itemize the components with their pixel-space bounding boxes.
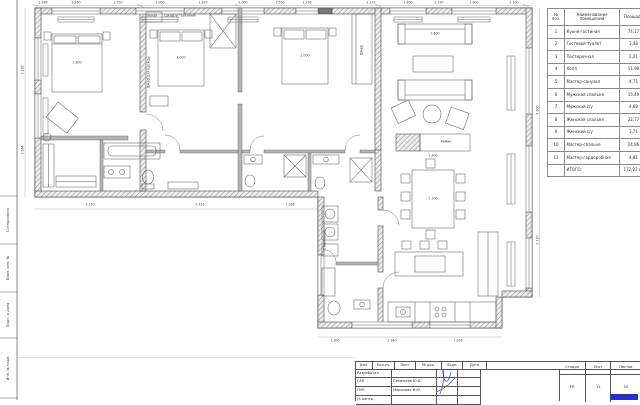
title-block-name-cell	[392, 370, 437, 378]
title-block: Изм. Кол.уч. Лист № док. Подп. Дата Разр…	[355, 361, 640, 401]
schedule-cell-name: Мастер-спальня	[565, 139, 620, 152]
sheet-frame	[0, 0, 355, 400]
stage-label: Стадия	[559, 362, 586, 374]
frame-side-label: Подп. и дата	[6, 303, 10, 327]
schedule-total-blank	[548, 164, 565, 177]
schedule-cell-area: 3,71	[620, 126, 640, 139]
selection-highlight	[610, 394, 638, 400]
schedule-cell-num: 4	[548, 63, 565, 76]
schedule-header-name: Наименование помещений	[565, 9, 620, 26]
col-list: Лист	[395, 362, 416, 369]
sheet-label: Лист	[586, 362, 611, 374]
schedule-cell-num: 11	[548, 151, 565, 164]
title-block-role-row: ГИПМорозова И.Ю.	[356, 387, 481, 396]
drawing-sheet: { "colors":{"accent_blue":"#2531c9","wal…	[0, 0, 640, 400]
col-podp: Подп.	[442, 362, 463, 369]
title-block-role-cell: Разработал	[356, 370, 392, 378]
schedule-header-num: № поз.	[548, 9, 565, 26]
title-block-name-cell: Морозова И.Ю.	[392, 387, 437, 395]
title-block-role-row: ГАПСеменова Ю.Б.	[356, 378, 481, 387]
schedule-cell-name: Женский с/у	[565, 126, 620, 139]
vent-shaft	[318, 8, 332, 14]
title-block-role-row: Разработал	[356, 370, 481, 379]
schedule-row: 4Холл11,98	[548, 63, 640, 76]
title-block-sign-cell	[437, 370, 458, 378]
schedule-cell-num: 5	[548, 76, 565, 89]
schedule-cell-name: Кухня-гостиная	[565, 26, 620, 39]
schedule-row: 9Женский с/у3,71	[548, 126, 640, 139]
title-block-role-row: Н. контр.	[356, 396, 481, 405]
schedule-row: 5Мастер-санузел4,71	[548, 76, 640, 89]
frame-side-label: Согласовано	[6, 208, 10, 232]
title-block-sign-cell	[437, 378, 458, 386]
schedule-cell-num: 6	[548, 88, 565, 101]
title-block-sign-cell	[437, 387, 458, 395]
schedule-cell-name: Гостевой туалет	[565, 38, 620, 51]
schedule-cell-name: Постирочная	[565, 51, 620, 64]
title-block-role-cell: ГАП	[356, 378, 392, 386]
schedule-header-row: № поз. Наименование помещений Площадь	[548, 9, 640, 26]
schedule-cell-name: Мастер-гардеробная	[565, 151, 620, 164]
title-block-date-cell	[458, 370, 481, 378]
schedule-row: 1Кухня-гостиная74,17	[548, 26, 640, 39]
schedule-cell-num: 2	[548, 38, 565, 51]
schedule-cell-num: 3	[548, 51, 565, 64]
floor-plan-drawing	[0, 0, 640, 400]
furniture	[43, 12, 498, 322]
schedule-cell-area: 15,49	[620, 88, 640, 101]
schedule-cell-name: Женская спальня	[565, 114, 620, 127]
sheets-label: Листов	[611, 362, 640, 374]
schedule-row: 7Мужской с/у4,88	[548, 101, 640, 114]
schedule-row: 11Мастер-гардеробная4,81	[548, 151, 640, 164]
title-block-role-cell: ГИП	[356, 387, 392, 395]
schedule-cell-name: Холл	[565, 63, 620, 76]
frame-side-label: Инв. № подл.	[6, 356, 10, 381]
schedule-header-area: Площадь	[620, 9, 640, 26]
schedule-cell-name: Мужской с/у	[565, 101, 620, 114]
schedule-row: 6Мужская спальня15,49	[548, 88, 640, 101]
schedule-cell-num: 8	[548, 114, 565, 127]
col-izm: Изм.	[356, 362, 373, 369]
schedule-cell-area: 2,01	[620, 51, 640, 64]
room-schedule-table: № поз. Наименование помещений Площадь 1К…	[547, 8, 640, 177]
title-block-name-cell: Семенова Ю.Б.	[392, 378, 437, 386]
apartment-outline	[35, 8, 532, 328]
schedule-cell-num: 1	[548, 26, 565, 39]
col-kol: Кол.уч.	[373, 362, 395, 369]
exterior-walls	[35, 8, 532, 328]
schedule-cell-area: 22,77	[620, 114, 640, 127]
schedule-cell-name: Мастер-санузел	[565, 76, 620, 89]
schedule-cell-area: 74,17	[620, 26, 640, 39]
schedule-cell-num: 7	[548, 101, 565, 114]
title-block-project-cell	[482, 370, 560, 402]
schedule-cell-num: 10	[548, 139, 565, 152]
schedule-total-label: ИТОГО:	[565, 164, 620, 177]
schedule-row: 8Женская спальня22,77	[548, 114, 640, 127]
schedule-total-value: 172,22 м²	[620, 164, 640, 177]
schedule-cell-area: 4,71	[620, 76, 640, 89]
schedule-row: 3Постирочная2,01	[548, 51, 640, 64]
schedule-cell-area: 4,81	[620, 151, 640, 164]
schedule-total-row: ИТОГО: 172,22 м²	[548, 164, 640, 177]
title-block-date-cell	[458, 378, 481, 386]
frame-side-label: Взам. инв. №	[6, 256, 10, 280]
schedule-cell-area: 24,86	[620, 139, 640, 152]
schedule-row: 2Гостевой туалет3,48	[548, 38, 640, 51]
interior-walls	[41, 8, 378, 265]
col-data: Дата	[463, 362, 487, 369]
schedule-cell-area: 3,48	[620, 38, 640, 51]
col-ndok: № док.	[416, 362, 442, 369]
sheet-value: 15	[586, 375, 611, 402]
schedule-cell-name: Мужская спальня	[565, 88, 620, 101]
title-block-date-cell	[458, 387, 481, 395]
stage-value: РП	[559, 375, 586, 402]
schedule-row: 10Мастер-спальня24,86	[548, 139, 640, 152]
windows	[35, 8, 532, 328]
schedule-cell-num: 9	[548, 126, 565, 139]
schedule-cell-area: 11,98	[620, 63, 640, 76]
schedule-cell-area: 4,88	[620, 101, 640, 114]
